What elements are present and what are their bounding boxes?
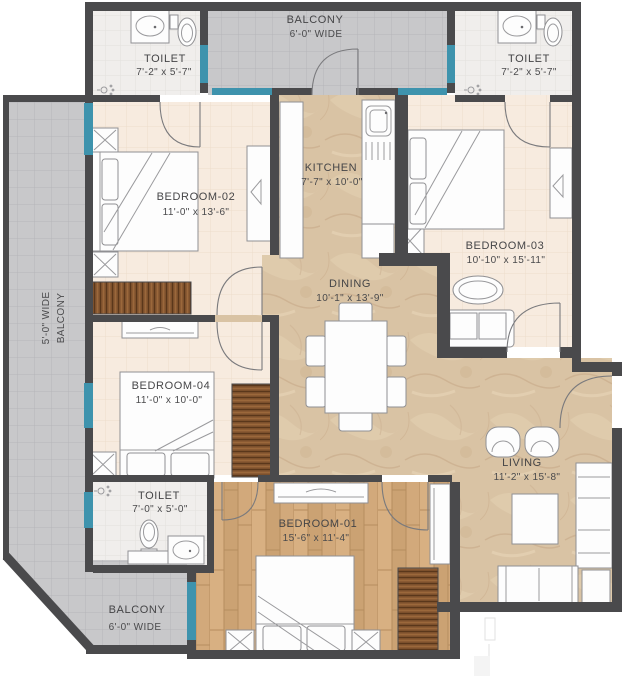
side-table xyxy=(582,570,610,603)
wc-cistern-icon xyxy=(537,15,545,29)
dims-balcony-left: 5'-0" WIDE xyxy=(41,292,52,345)
dresser xyxy=(550,148,572,218)
floor-corridor xyxy=(262,255,279,322)
wardrobe xyxy=(398,568,438,652)
wc-cistern-icon xyxy=(170,15,178,29)
dims-dining: 10'-1" x 13'-9" xyxy=(316,293,384,304)
window-balcony-top-left xyxy=(200,45,208,83)
cupboard xyxy=(430,484,450,564)
label-balcony-left: BALCONY xyxy=(56,293,67,344)
label-dining: DINING xyxy=(329,278,371,290)
tv-unit xyxy=(122,320,198,338)
pillow-icon xyxy=(102,159,118,200)
dims-toilet-bottom: 7'-0" x 5'-0" xyxy=(132,504,188,515)
dims-bedroom-03: 10'-10" x 15'-11" xyxy=(467,255,546,266)
dining-chair xyxy=(386,377,406,407)
dims-kitchen: 7'-7" x 10'-0" xyxy=(301,177,363,188)
window-bedroom-02-top xyxy=(212,88,272,95)
label-bedroom-02: BEDROOM-02 xyxy=(157,191,236,203)
floor-plan-canvas: TOILET 7'-2" x 5'-7" BALCONY 6'-0" WIDE … xyxy=(0,0,631,676)
kitchen-cabinet xyxy=(362,224,394,258)
window-bedroom-01-balcony xyxy=(187,582,196,640)
dining-chair xyxy=(339,411,372,431)
coffee-table xyxy=(512,494,558,544)
dims-living: 11'-2" x 15'-8" xyxy=(494,472,561,483)
washbasin-counter xyxy=(131,10,169,43)
dining-chair xyxy=(386,336,406,366)
washbasin-counter xyxy=(498,10,536,43)
watermark-fragments xyxy=(474,618,495,676)
pillow-icon xyxy=(171,453,209,476)
label-toilet-top-right: TOILET xyxy=(508,53,550,65)
oval-table xyxy=(453,276,503,304)
window-bedroom-02 xyxy=(84,103,93,155)
watermark-fragment xyxy=(474,656,490,676)
armchair xyxy=(525,427,559,457)
kitchen-counter-left xyxy=(280,102,303,258)
label-living: LIVING xyxy=(502,457,542,469)
vanity-counter xyxy=(128,551,168,564)
wardrobe xyxy=(232,384,272,477)
wardrobe xyxy=(92,282,191,314)
dresser xyxy=(247,146,271,241)
window-bedroom-04 xyxy=(84,383,93,428)
pillow-icon xyxy=(263,626,301,651)
label-bedroom-04: BEDROOM-04 xyxy=(132,380,211,392)
pillow-icon xyxy=(102,204,118,245)
dims-balcony-bottom: 6'-0" WIDE xyxy=(109,622,162,633)
dining-chair xyxy=(306,336,326,366)
label-bedroom-03: BEDROOM-03 xyxy=(466,240,545,252)
label-bedroom-01: BEDROOM-01 xyxy=(279,518,358,530)
tv-unit xyxy=(274,483,368,503)
window-balcony-top-right xyxy=(447,45,455,83)
pillow-icon xyxy=(127,453,165,476)
floor-door-threshold xyxy=(215,315,262,322)
window-bedroom-03-top xyxy=(398,88,447,95)
dining-chair xyxy=(339,303,372,323)
dims-balcony-top: 6'-0" WIDE xyxy=(290,29,343,40)
dims-toilet-top-right: 7'-2" x 5'-7" xyxy=(501,67,557,78)
label-balcony-bottom: BALCONY xyxy=(109,604,166,616)
label-balcony-top: BALCONY xyxy=(287,14,344,26)
dims-bedroom-02: 11'-0" x 13'-6" xyxy=(163,207,230,218)
label-toilet-bottom: TOILET xyxy=(138,490,180,502)
dims-bedroom-04: 11'-0" x 10'-0" xyxy=(136,395,203,406)
loveseat xyxy=(441,310,514,347)
wc-icon xyxy=(140,520,158,548)
pillow-icon xyxy=(410,138,426,179)
sofa-bottom xyxy=(498,566,578,603)
window-toilet-bottom xyxy=(84,492,93,528)
dims-toilet-top-left: 7'-2" x 5'-7" xyxy=(136,67,192,78)
dining-chair xyxy=(306,377,326,407)
sofa-right xyxy=(576,463,612,568)
watermark-fragment xyxy=(485,618,495,640)
pillow-icon xyxy=(410,183,426,224)
floor-plan: TOILET 7'-2" x 5'-7" BALCONY 6'-0" WIDE … xyxy=(0,0,631,676)
floors xyxy=(9,9,612,650)
kitchen-counter-right xyxy=(362,100,395,224)
armchair xyxy=(486,427,520,457)
dims-bedroom-01: 15'-6" x 11'-4" xyxy=(283,533,350,544)
dining-table xyxy=(325,321,387,413)
label-toilet-top-left: TOILET xyxy=(144,53,186,65)
label-kitchen: KITCHEN xyxy=(305,162,357,174)
pillow-icon xyxy=(307,626,345,651)
